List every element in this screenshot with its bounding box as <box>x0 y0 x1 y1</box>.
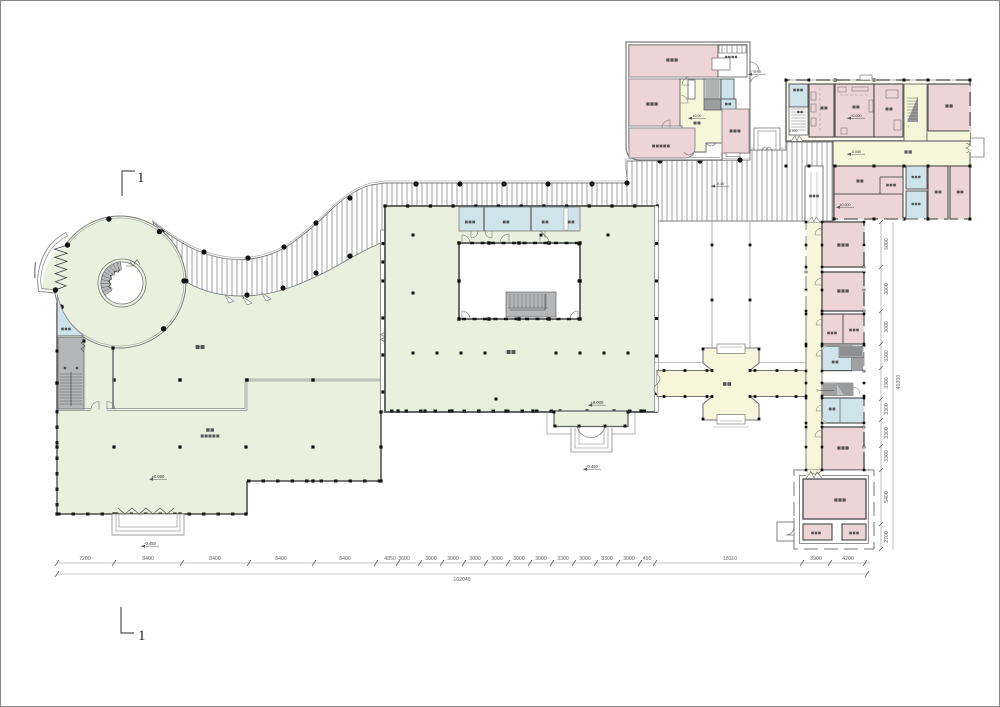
svg-text:-0.45: -0.45 <box>753 70 761 74</box>
svg-text:+0.000: +0.000 <box>850 114 861 118</box>
svg-text:8400: 8400 <box>339 556 351 562</box>
svg-text:↑: ↑ <box>907 124 909 129</box>
svg-text:±0.000: ±0.000 <box>152 474 165 479</box>
svg-text:3000: 3000 <box>884 321 890 333</box>
svg-text:8400: 8400 <box>275 556 287 562</box>
svg-text:3300: 3300 <box>884 403 890 415</box>
svg-text:±0.000: ±0.000 <box>840 203 851 207</box>
svg-text:1: 1 <box>138 628 146 644</box>
svg-text:1: 1 <box>137 170 145 186</box>
svg-text:3000: 3000 <box>623 556 635 562</box>
svg-text:3600: 3600 <box>398 556 410 562</box>
svg-text:8400: 8400 <box>209 556 221 562</box>
svg-text:7200: 7200 <box>79 556 91 562</box>
svg-text:8400: 8400 <box>142 556 154 562</box>
svg-text:3300: 3300 <box>884 427 890 439</box>
svg-text:±0.00: ±0.00 <box>693 114 702 118</box>
svg-text:4850: 4850 <box>384 556 396 562</box>
svg-text:-0.450: -0.450 <box>586 464 599 469</box>
svg-text:3300: 3300 <box>601 556 613 562</box>
svg-text:3000: 3000 <box>535 556 547 562</box>
svg-text:5400: 5400 <box>884 491 890 503</box>
svg-text:2700: 2700 <box>884 531 890 543</box>
svg-text:6000: 6000 <box>884 238 890 250</box>
svg-text:3000: 3000 <box>491 556 503 562</box>
svg-text:102045: 102045 <box>453 577 470 583</box>
svg-text:3300: 3300 <box>557 556 569 562</box>
svg-text:3300: 3300 <box>884 450 890 462</box>
svg-text:-0.450: -0.450 <box>144 541 157 546</box>
svg-text:3900: 3900 <box>810 556 822 562</box>
svg-text:450: 450 <box>643 556 652 562</box>
svg-text:3000: 3000 <box>447 556 459 562</box>
svg-text:3000: 3000 <box>469 556 481 562</box>
svg-text:↑: ↑ <box>816 388 819 394</box>
svg-text:-0.060: -0.060 <box>851 150 861 154</box>
svg-text:3000: 3000 <box>425 556 437 562</box>
svg-text:3300: 3300 <box>884 377 890 389</box>
svg-text:6.000: 6.000 <box>789 129 798 133</box>
svg-text:-0.45: -0.45 <box>716 182 724 186</box>
svg-text:±0.000: ±0.000 <box>591 400 604 405</box>
svg-text:3000: 3000 <box>884 283 890 295</box>
svg-text:3000: 3000 <box>513 556 525 562</box>
svg-text:40200: 40200 <box>896 375 902 390</box>
svg-text:3300: 3300 <box>884 350 890 362</box>
svg-text:18110: 18110 <box>723 556 737 562</box>
svg-text:4200: 4200 <box>842 556 854 562</box>
svg-text:3000: 3000 <box>579 556 591 562</box>
